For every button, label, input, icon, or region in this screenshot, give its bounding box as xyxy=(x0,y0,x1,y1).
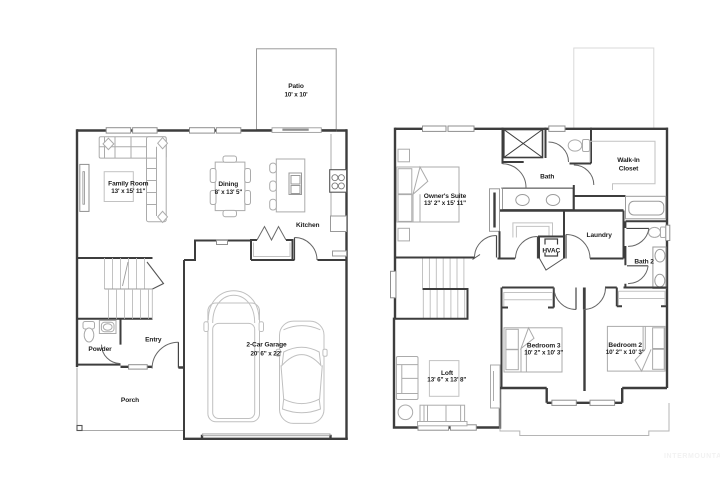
svg-text:10' 2" x 10' 3": 10' 2" x 10' 3" xyxy=(606,349,645,356)
svg-text:Laundry: Laundry xyxy=(587,232,613,239)
svg-text:10' x 10': 10' x 10' xyxy=(284,92,308,99)
svg-text:Walk-In: Walk-In xyxy=(617,157,640,164)
svg-text:Patio: Patio xyxy=(288,83,304,90)
svg-text:Dining: Dining xyxy=(218,181,238,188)
svg-text:Powder: Powder xyxy=(88,346,112,353)
svg-text:Bath: Bath xyxy=(540,174,554,181)
svg-text:Bath 2: Bath 2 xyxy=(634,259,654,266)
svg-text:8' x 13' 5": 8' x 13' 5" xyxy=(215,189,243,196)
svg-text:Owner's Suite: Owner's Suite xyxy=(424,193,467,200)
svg-text:13' 6" x 13' 8": 13' 6" x 13' 8" xyxy=(427,377,466,384)
svg-text:INTERMOUNTAIN: INTERMOUNTAIN xyxy=(664,453,720,460)
svg-text:Bedroom 2: Bedroom 2 xyxy=(608,342,642,349)
svg-text:13' x 15' 11": 13' x 15' 11" xyxy=(111,188,145,195)
svg-text:Kitchen: Kitchen xyxy=(296,222,320,229)
svg-text:13' 2" x 15' 11": 13' 2" x 15' 11" xyxy=(424,200,466,207)
svg-text:Porch: Porch xyxy=(121,397,139,404)
svg-text:20' 6" x 22': 20' 6" x 22' xyxy=(250,350,282,357)
svg-text:Bedroom 3: Bedroom 3 xyxy=(527,342,561,349)
svg-text:Family Room: Family Room xyxy=(108,181,149,188)
svg-text:Entry: Entry xyxy=(145,336,162,343)
svg-text:10' 2" x 10' 3": 10' 2" x 10' 3" xyxy=(524,349,563,356)
svg-text:Closet: Closet xyxy=(619,165,639,172)
svg-text:2-Car Garage: 2-Car Garage xyxy=(246,341,287,348)
svg-text:HVAC: HVAC xyxy=(542,247,560,254)
